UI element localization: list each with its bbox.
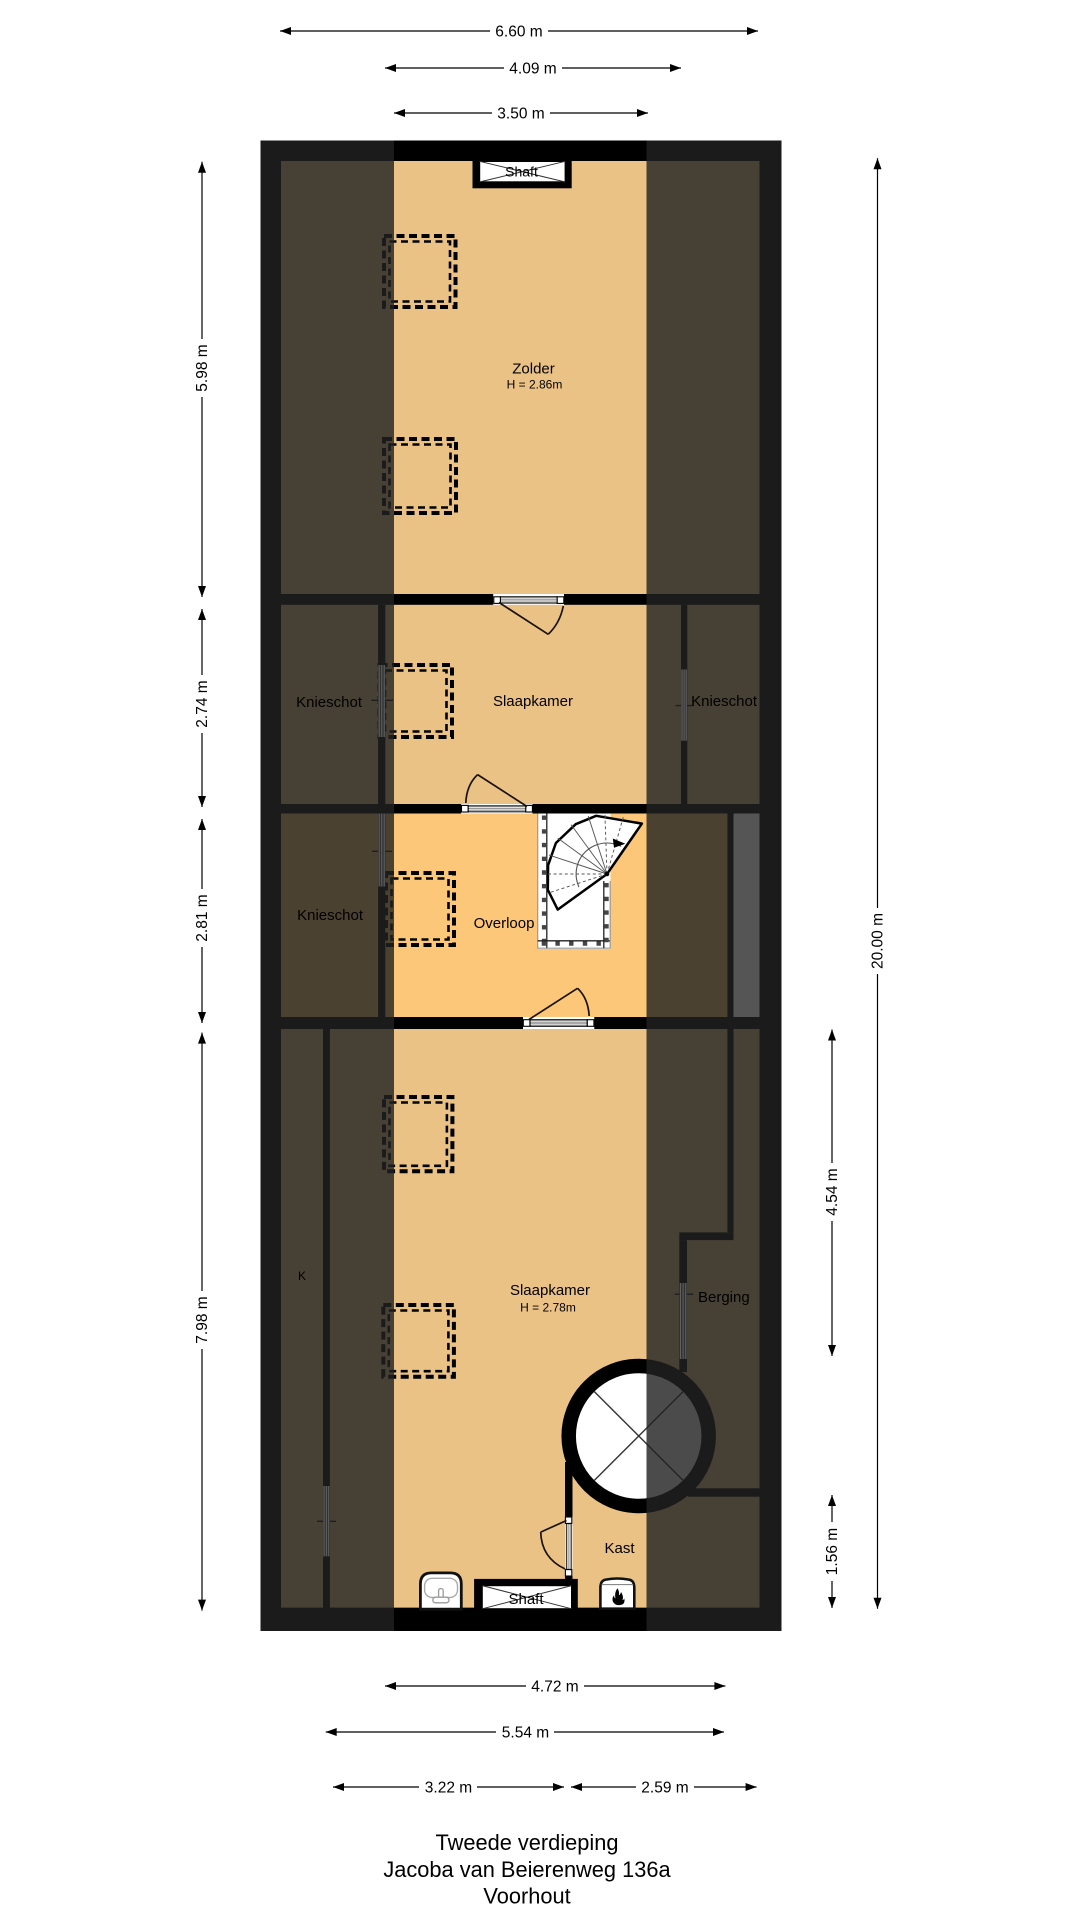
svg-text:1.56 m: 1.56 m [824,1528,841,1575]
svg-text:4.72 m: 4.72 m [531,1679,578,1696]
svg-text:Berging: Berging [698,1289,750,1306]
svg-text:Shaft: Shaft [508,1591,544,1608]
svg-text:Slaapkamer: Slaapkamer [493,693,573,710]
svg-text:2.81 m: 2.81 m [194,894,211,941]
svg-text:Knieschot: Knieschot [296,694,363,711]
svg-text:K: K [298,1269,306,1283]
svg-text:4.09 m: 4.09 m [509,61,556,78]
svg-text:Voorhout: Voorhout [483,1884,570,1909]
svg-text:3.22 m: 3.22 m [425,1780,472,1797]
svg-text:7.98 m: 7.98 m [194,1296,211,1343]
svg-text:5.54 m: 5.54 m [502,1725,549,1742]
svg-text:6.60 m: 6.60 m [495,24,542,41]
svg-text:5.98 m: 5.98 m [194,344,211,391]
svg-text:Knieschot: Knieschot [297,907,364,924]
svg-text:4.54 m: 4.54 m [824,1168,841,1215]
svg-text:Tweede verdieping: Tweede verdieping [436,1830,619,1855]
svg-text:Shaft: Shaft [505,164,538,180]
svg-text:Jacoba van Beierenweg 136a: Jacoba van Beierenweg 136a [383,1857,671,1882]
svg-text:Knieschot: Knieschot [691,693,758,710]
svg-text:Overloop: Overloop [474,915,535,932]
svg-text:Slaapkamer: Slaapkamer [510,1282,590,1299]
svg-text:2.59 m: 2.59 m [641,1780,688,1797]
svg-text:Zolder: Zolder [512,361,555,378]
svg-text:3.50 m: 3.50 m [497,106,544,123]
svg-text:2.74 m: 2.74 m [194,680,211,727]
svg-text:Kast: Kast [604,1540,635,1557]
svg-text:H = 2.86m: H = 2.86m [507,378,563,392]
svg-text:20.00 m: 20.00 m [870,913,887,969]
svg-text:H = 2.78m: H = 2.78m [520,1301,576,1315]
